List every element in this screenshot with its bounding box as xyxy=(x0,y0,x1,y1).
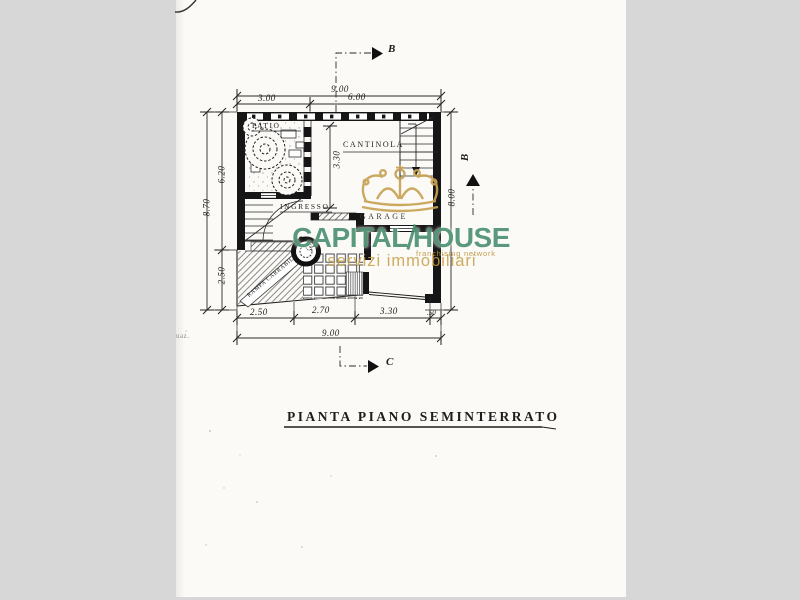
dim-right-height: 8.00 xyxy=(448,182,457,214)
floor-plan-drawing xyxy=(0,0,800,600)
margin-note: uaz. xyxy=(176,333,189,340)
dim-bottom-total: 9.00 xyxy=(322,329,340,338)
paper-specks xyxy=(185,330,437,548)
brand-capital: CAPITAL xyxy=(292,222,408,253)
dim-left-upper: 6.20 xyxy=(218,159,227,191)
corner-crease-mark xyxy=(175,0,196,12)
dim-bottom-2: 2.70 xyxy=(312,306,330,315)
room-label-cantinola: CANTINOLA xyxy=(343,141,404,149)
plan-caption: PIANTA PIANO SEMINTERRATO xyxy=(287,410,560,424)
section-marker-c-bottom: C xyxy=(386,357,393,368)
dim-cantinola-height: 3.30 xyxy=(333,144,342,176)
caption-underline-tail xyxy=(542,427,556,429)
room-label-ingresso: INGRESSO xyxy=(280,203,329,211)
room-label-garage: GARAGE xyxy=(360,213,408,221)
dim-top-right: 6.00 xyxy=(348,93,366,102)
room-label-patio: PATIO xyxy=(252,122,281,130)
dim-bottom-3: 3.30 xyxy=(380,307,398,316)
dim-left-total: 8.70 xyxy=(203,192,212,224)
scanned-floor-plan-page: PATIO CANTINOLA INGRESSO GARAGE RAMPA CA… xyxy=(0,0,800,600)
watermark-subtitle: servizi immobiliari xyxy=(176,252,628,271)
dim-bottom-1: 2.50 xyxy=(250,308,268,317)
dim-top-left: 3.00 xyxy=(258,94,276,103)
watermark-brand: CAPITALHOUSE xyxy=(176,224,626,252)
upper-stair xyxy=(400,117,433,180)
section-marker-b-top: B xyxy=(388,44,395,55)
dim-bottom-4: .50 xyxy=(427,310,436,317)
section-marker-b-right: B xyxy=(460,154,471,161)
